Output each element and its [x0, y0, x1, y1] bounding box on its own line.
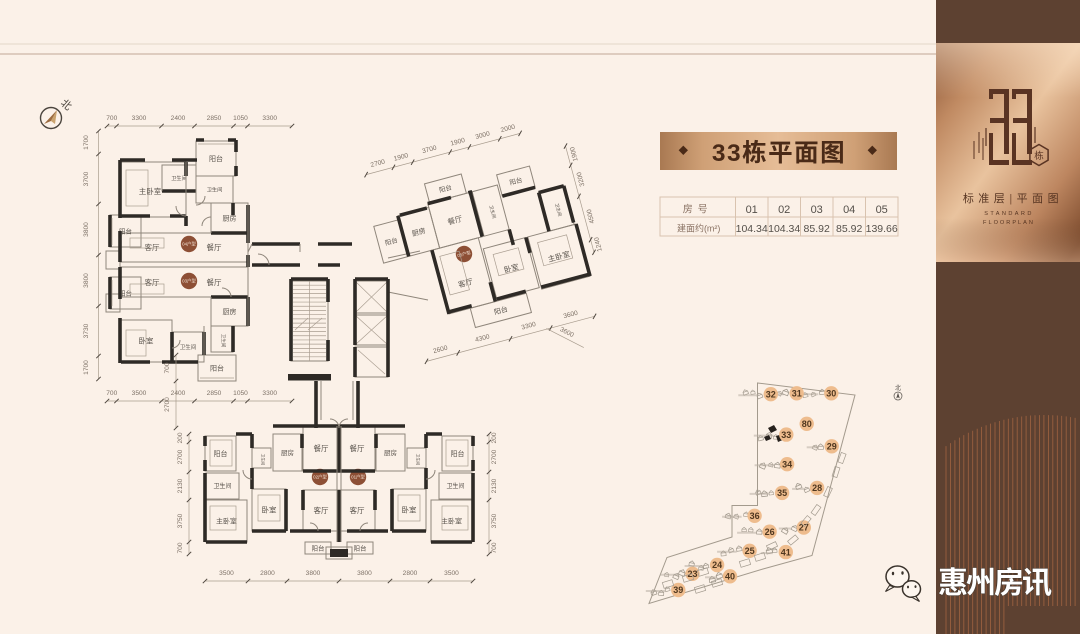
svg-text:80: 80: [802, 419, 812, 429]
svg-text:阳台: 阳台: [209, 154, 223, 164]
svg-text:2400: 2400: [171, 115, 186, 122]
svg-text:41: 41: [781, 547, 791, 557]
svg-text:85.92: 85.92: [804, 223, 830, 235]
svg-text:卫生间: 卫生间: [220, 334, 227, 348]
svg-text:3750: 3750: [177, 513, 184, 528]
svg-text:卫生间: 卫生间: [207, 185, 223, 193]
svg-text:2800: 2800: [403, 570, 418, 577]
svg-text:700: 700: [106, 390, 117, 397]
svg-text:200: 200: [491, 432, 498, 443]
svg-text:卫生间: 卫生间: [213, 481, 231, 490]
svg-text:700: 700: [106, 115, 117, 122]
svg-text:2700: 2700: [491, 449, 498, 464]
svg-text:栋: 栋: [1034, 148, 1044, 162]
svg-text:3300: 3300: [132, 115, 147, 122]
svg-text:餐厅: 餐厅: [207, 242, 222, 253]
svg-text:2130: 2130: [491, 478, 498, 493]
svg-text:卫生间: 卫生间: [180, 343, 197, 351]
svg-text:卫生间: 卫生间: [260, 454, 266, 466]
svg-text:STANDARD: STANDARD: [984, 211, 1034, 217]
svg-text:3800: 3800: [306, 570, 321, 577]
svg-text:2130: 2130: [177, 478, 184, 493]
svg-text:客厅: 客厅: [350, 505, 365, 516]
svg-text:1050: 1050: [233, 390, 248, 397]
svg-text:主卧室: 主卧室: [216, 517, 237, 527]
svg-text:01: 01: [746, 204, 758, 216]
svg-text:31: 31: [792, 389, 802, 399]
svg-text:房号: 房号: [683, 201, 713, 216]
svg-text:35: 35: [777, 488, 787, 498]
svg-text:2700: 2700: [177, 449, 184, 464]
svg-text:104.34: 104.34: [736, 223, 768, 235]
svg-text:05: 05: [876, 204, 888, 216]
svg-text:02户型: 02户型: [313, 474, 327, 481]
svg-text:23: 23: [687, 569, 697, 579]
svg-text:客厅: 客厅: [145, 277, 160, 288]
svg-text:700: 700: [177, 542, 184, 553]
svg-text:33栋平面图: 33栋平面图: [712, 134, 846, 169]
svg-text:02: 02: [778, 204, 790, 216]
svg-text:2400: 2400: [171, 390, 186, 397]
svg-text:卧室: 卧室: [262, 505, 277, 516]
svg-text:39: 39: [673, 585, 683, 595]
svg-text:33: 33: [781, 430, 791, 440]
svg-text:标准层|平面图: 标准层|平面图: [963, 190, 1063, 206]
svg-text:厨房: 厨房: [281, 447, 294, 457]
svg-text:01户型: 01户型: [351, 474, 365, 481]
svg-text:3300: 3300: [262, 390, 277, 397]
svg-text:26: 26: [765, 527, 775, 537]
svg-text:700: 700: [164, 362, 171, 373]
svg-text:2800: 2800: [260, 570, 275, 577]
svg-text:2850: 2850: [207, 115, 222, 122]
svg-text:1050: 1050: [233, 115, 248, 122]
svg-text:3800: 3800: [83, 222, 90, 237]
svg-text:3730: 3730: [83, 323, 90, 338]
svg-text:阳台: 阳台: [451, 449, 465, 459]
svg-text:主卧室: 主卧室: [441, 517, 462, 527]
svg-text:03户型: 03户型: [182, 278, 196, 285]
svg-text:阳台: 阳台: [312, 542, 325, 552]
svg-text:客厅: 客厅: [145, 242, 160, 253]
svg-text:客厅: 客厅: [314, 505, 329, 516]
svg-text:3500: 3500: [219, 570, 234, 577]
svg-text:34: 34: [782, 459, 792, 469]
svg-text:北: 北: [895, 383, 901, 392]
svg-text:卫生间: 卫生间: [415, 454, 421, 466]
svg-text:24: 24: [712, 560, 722, 570]
svg-text:餐厅: 餐厅: [207, 277, 222, 288]
svg-text:104.34: 104.34: [768, 223, 800, 235]
svg-text:餐厅: 餐厅: [314, 443, 329, 454]
svg-text:2700: 2700: [164, 397, 171, 412]
svg-text:1700: 1700: [83, 360, 90, 375]
svg-text:32: 32: [766, 389, 776, 399]
svg-text:3800: 3800: [83, 273, 90, 288]
svg-text:3800: 3800: [357, 570, 372, 577]
svg-text:40: 40: [725, 572, 735, 582]
svg-text:阳台: 阳台: [354, 542, 367, 552]
svg-text:FLOORPLAN: FLOORPLAN: [983, 220, 1035, 226]
svg-text:餐厅: 餐厅: [350, 443, 365, 454]
svg-text:3750: 3750: [491, 513, 498, 528]
svg-text:主卧室: 主卧室: [139, 186, 162, 197]
svg-text:3300: 3300: [262, 115, 277, 122]
svg-text:2850: 2850: [207, 390, 222, 397]
svg-text:28: 28: [812, 483, 822, 493]
svg-text:04: 04: [843, 204, 855, 216]
svg-text:139.66: 139.66: [866, 223, 898, 235]
svg-text:3700: 3700: [83, 171, 90, 186]
svg-text:25: 25: [745, 546, 755, 556]
svg-text:03: 03: [811, 204, 823, 216]
svg-text:1700: 1700: [83, 135, 90, 150]
svg-text:建面约(m²): 建面约(m²): [677, 222, 721, 235]
svg-text:卧室: 卧室: [402, 505, 417, 516]
svg-text:700: 700: [491, 542, 498, 553]
svg-text:阳台: 阳台: [210, 364, 224, 374]
svg-text:04户型: 04户型: [182, 241, 196, 248]
svg-text:厨房: 厨房: [384, 447, 397, 457]
svg-text:惠州房讯: 惠州房讯: [938, 558, 1052, 602]
svg-text:30: 30: [826, 389, 836, 399]
svg-text:卫生间: 卫生间: [446, 481, 464, 490]
svg-text:阳台: 阳台: [214, 449, 228, 459]
svg-text:85.92: 85.92: [836, 223, 862, 235]
svg-text:36: 36: [750, 511, 760, 521]
svg-text:厨房: 厨房: [223, 307, 237, 317]
svg-text:200: 200: [177, 432, 184, 443]
svg-text:3500: 3500: [444, 570, 459, 577]
svg-text:3500: 3500: [132, 390, 147, 397]
svg-text:厨房: 厨房: [223, 214, 237, 224]
svg-text:29: 29: [827, 442, 837, 452]
svg-text:27: 27: [799, 523, 809, 533]
